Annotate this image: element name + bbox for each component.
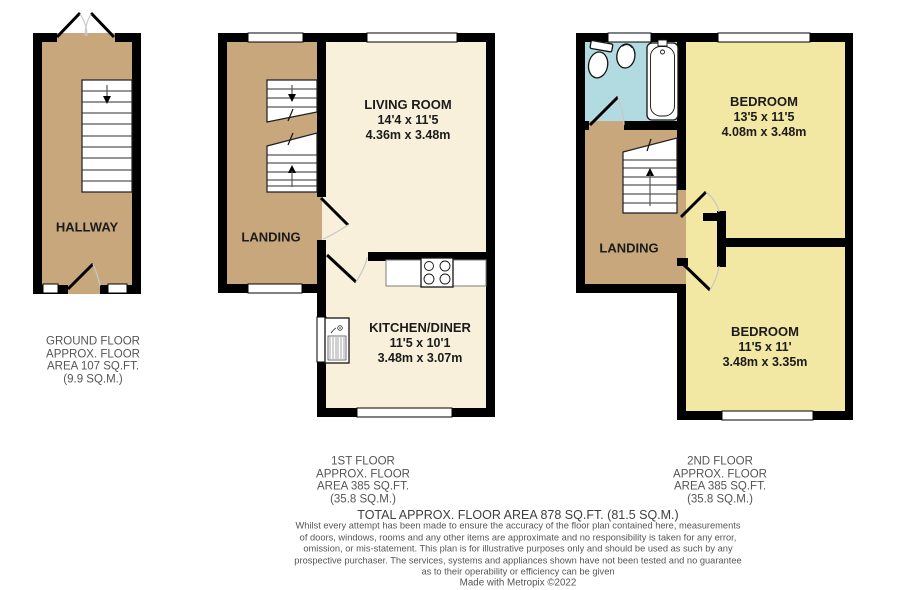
window <box>108 284 127 293</box>
disclaimer-line: prospective purchaser. The services, sys… <box>294 555 741 567</box>
summary-line: 2ND FLOOR <box>673 456 767 469</box>
wall <box>624 121 677 130</box>
back-bedroom-label: BEDROOM 11'5 x 11' 3.48m x 3.35m <box>723 324 808 371</box>
bathtub-icon <box>647 40 678 120</box>
second-floor-plan <box>576 33 853 420</box>
disclaimer: Whilst every attempt has been made to en… <box>294 520 741 578</box>
window <box>248 284 302 293</box>
wall <box>486 33 495 417</box>
summary-line: AREA 385 SQ.FT. <box>673 481 767 494</box>
window <box>722 411 813 420</box>
kitchen-label: KITCHEN/DINER 11'5 x 10'1 3.48m x 3.07m <box>369 320 471 367</box>
summary-line: AREA 107 SQ.FT. <box>46 361 140 374</box>
room-dim-metric: 3.48m x 3.07m <box>369 351 471 367</box>
room-dim-imperial: 14'4 x 11'5 <box>364 112 451 128</box>
wall <box>317 42 326 197</box>
room-dim-metric: 4.36m x 3.48m <box>364 128 451 144</box>
entry-door-opening <box>57 33 115 42</box>
summary-line: AREA 385 SQ.FT. <box>316 481 410 494</box>
window <box>357 408 452 417</box>
room-dim-imperial: 13'5 x 11'5 <box>722 109 807 125</box>
wall <box>576 121 589 130</box>
door-swing-arc <box>85 14 91 36</box>
floorplan-canvas: HALLWAY LIVING ROOM 14'4 x 11'5 4.36m x … <box>0 0 900 590</box>
second-landing-label: LANDING <box>599 240 658 256</box>
disclaimer-line: Whilst every attempt has been made to en… <box>294 520 741 532</box>
window <box>248 33 303 42</box>
front-bedroom-label: BEDROOM 13'5 x 11'5 4.08m x 3.48m <box>722 94 807 141</box>
summary-line: (9.9 SQ.M.) <box>46 374 140 387</box>
wall <box>677 288 686 411</box>
disclaimer-line: of doors, windows, rooms and any other i… <box>294 532 741 544</box>
wall <box>576 284 686 293</box>
wall <box>576 33 585 293</box>
room-name: LIVING ROOM <box>364 97 451 113</box>
window <box>43 284 58 293</box>
room-name: KITCHEN/DINER <box>369 320 471 336</box>
hob-icon <box>421 258 453 287</box>
kitchen-sink-icon <box>325 318 349 363</box>
first-landing-label: LANDING <box>241 229 300 245</box>
hallway-label: HALLWAY <box>56 219 118 235</box>
summary-line: 1ST FLOOR <box>316 456 410 469</box>
room-dim-metric: 3.48m x 3.35m <box>723 355 808 371</box>
room-name: BEDROOM <box>722 94 807 110</box>
wall <box>703 213 726 221</box>
living-room-label: LIVING ROOM 14'4 x 11'5 4.36m x 3.48m <box>364 97 451 144</box>
room-name: BEDROOM <box>723 324 808 340</box>
wall <box>218 33 227 293</box>
ground-floor-plan <box>33 13 141 294</box>
wall <box>845 33 853 420</box>
disclaimer-line: omission, or mis-statement. This plan is… <box>294 543 741 555</box>
summary-line: (35.8 SQ.M.) <box>673 494 767 507</box>
bath-tap-icon <box>658 40 667 46</box>
window <box>718 33 810 42</box>
window <box>608 33 651 42</box>
room-dim-imperial: 11'5 x 11' <box>723 339 808 355</box>
room-dim-metric: 4.08m x 3.48m <box>722 125 807 141</box>
metropix-credit: Made with Metropix ©2022 <box>460 578 577 589</box>
disclaimer-line: as to their operability or efficiency ca… <box>294 566 741 578</box>
first-floor-summary: 1ST FLOOR APPROX. FLOOR AREA 385 SQ.FT. … <box>316 456 410 507</box>
summary-line: APPROX. FLOOR <box>46 348 140 361</box>
summary-line: GROUND FLOOR <box>46 336 140 349</box>
summary-line: (35.8 SQ.M.) <box>316 494 410 507</box>
summary-line: APPROX. FLOOR <box>316 468 410 481</box>
living-room-floor <box>322 42 490 261</box>
summary-line: APPROX. FLOOR <box>673 468 767 481</box>
wall <box>722 238 845 247</box>
room-dim-imperial: 11'5 x 10'1 <box>369 335 471 351</box>
window <box>367 33 457 42</box>
ground-floor-summary: GROUND FLOOR APPROX. FLOOR AREA 107 SQ.F… <box>46 336 140 387</box>
wall <box>317 240 326 284</box>
second-floor-summary: 2ND FLOOR APPROX. FLOOR AREA 385 SQ.FT. … <box>673 456 767 507</box>
staircase <box>82 80 132 192</box>
